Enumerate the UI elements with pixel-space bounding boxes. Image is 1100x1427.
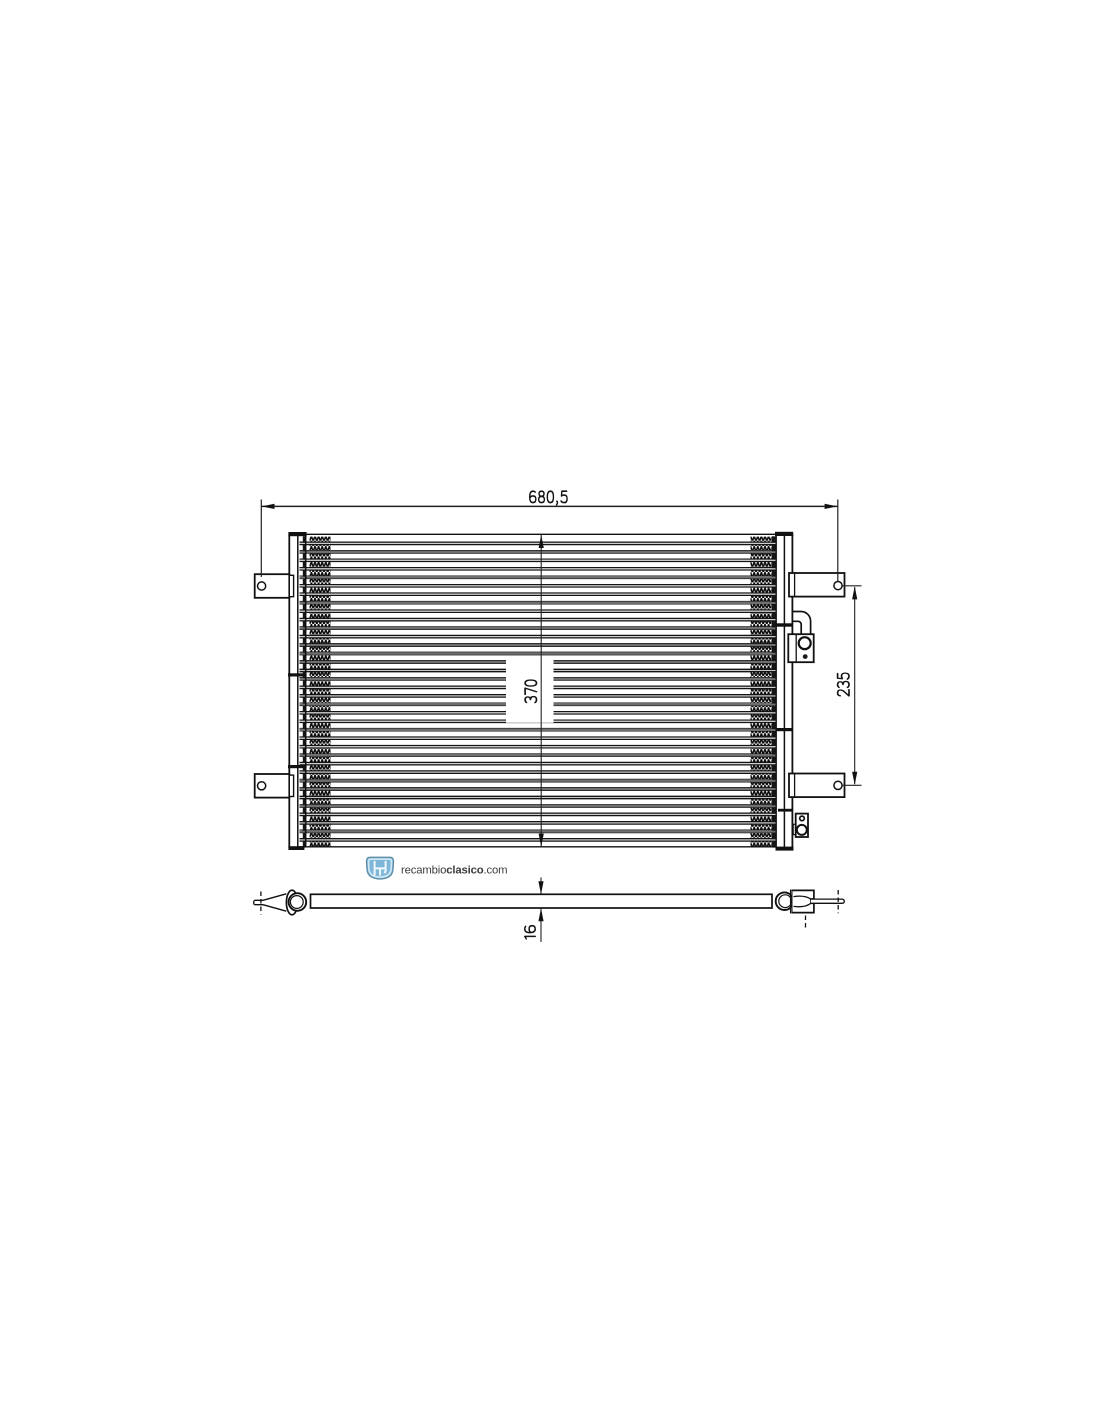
svg-text:recambioclasico.com: recambioclasico.com [401,865,507,877]
